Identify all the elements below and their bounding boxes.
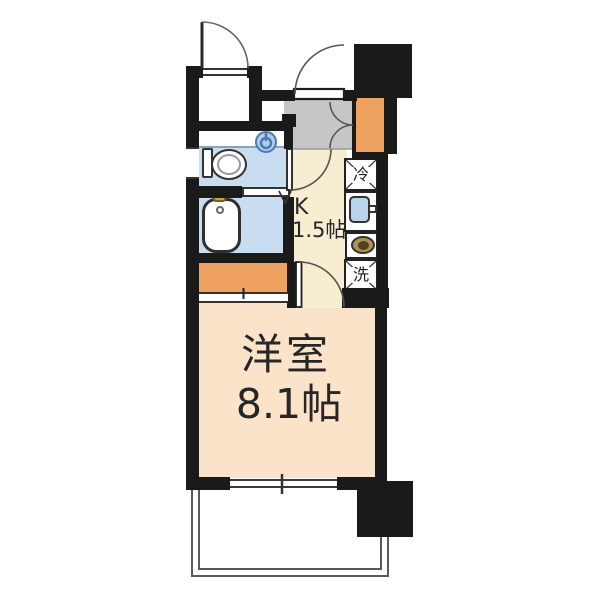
- closet-sliding-door: [199, 292, 288, 303]
- main-room-name: 洋室: [196, 332, 376, 378]
- trunkroom-threshold: [203, 68, 247, 76]
- wall-right-upper: [384, 97, 397, 154]
- sink-faucet: [368, 205, 377, 213]
- wash-basin: [255, 131, 277, 153]
- bath-drain: [216, 206, 224, 214]
- window-toilet-left: [186, 147, 199, 179]
- main-room-size: 8.1帖: [196, 382, 382, 427]
- wall-segment: [186, 66, 203, 78]
- refrigerator-label: 冷: [352, 167, 370, 183]
- kitchen-sink: [349, 196, 370, 223]
- genkan-step: [282, 114, 296, 127]
- floorplan: 冷 洗 洋室 8.1帖 K 1.5帖: [0, 0, 600, 600]
- wall-segment: [284, 131, 293, 149]
- pillar-top-right: [354, 44, 412, 98]
- wall-bath-bottom: [186, 253, 292, 263]
- washer-space: 洗: [344, 259, 378, 291]
- wall-bottom-left: [192, 477, 230, 490]
- kitchen-size: 1.5帖: [292, 219, 346, 241]
- washer-label: 洗: [352, 267, 370, 283]
- wall-above-shoebox: [258, 90, 295, 101]
- wall-under-trunkroom: [186, 121, 293, 131]
- stove-burner-center: [358, 241, 369, 250]
- wall-closet-right: [287, 262, 296, 308]
- refrigerator-space: 冷: [344, 158, 378, 191]
- wall-segment: [352, 98, 356, 152]
- balcony-inner-rail: [198, 482, 382, 570]
- closet-floor: [199, 262, 287, 293]
- wall-toilet-bath: [197, 186, 242, 198]
- balcony-sliding-window: [230, 479, 337, 488]
- shoe-cabinet-area: [262, 100, 284, 121]
- entrance-storage-strip: [356, 98, 384, 152]
- wall-right-kitchen: [377, 153, 388, 303]
- toilet-seat: [217, 154, 241, 175]
- pillar-bottom-right: [357, 481, 413, 537]
- bathroom-folding-door: [242, 187, 290, 197]
- kitchen-label: K: [294, 196, 308, 219]
